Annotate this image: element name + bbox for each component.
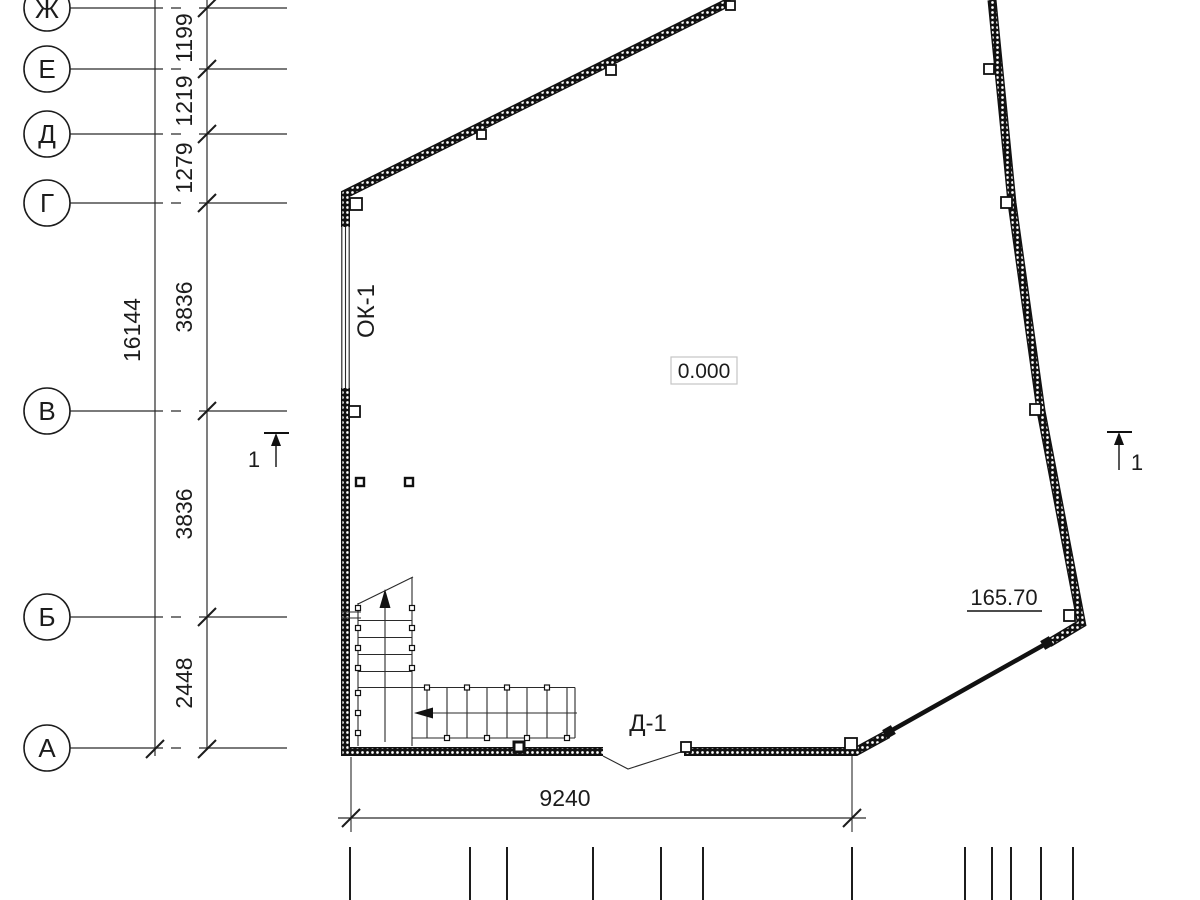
chain-dimension-text: 1199 — [171, 13, 197, 62]
plan-svg: Ж Е Д Г В Б А 16144 1199 1219 1279 3836 … — [0, 0, 1200, 900]
axis-label: Е — [38, 54, 55, 84]
axis-label: Ж — [35, 0, 59, 24]
axis-label: Б — [38, 602, 55, 632]
axis-bubbles: Ж Е Д Г В Б А — [24, 0, 70, 771]
elevation-value: 0.000 — [678, 360, 731, 383]
staircase — [341, 577, 577, 746]
axis-label: А — [38, 733, 56, 763]
bottom-dimension-text: 9240 — [539, 785, 590, 811]
axis-label: В — [38, 396, 55, 426]
stair-post-markers — [356, 606, 570, 741]
window-mark-label: ОК-1 — [353, 284, 380, 338]
overall-dimension-text: 16144 — [119, 298, 145, 362]
axis-label: Д — [38, 119, 56, 149]
dimension-chain-left: 1199 1219 1279 3836 3836 2448 — [171, 0, 216, 758]
door-mark-label: Д-1 — [629, 710, 667, 737]
axis-label: Г — [40, 188, 54, 218]
window-ok1 — [342, 227, 349, 388]
floor-plan-drawing: Ж Е Д Г В Б А 16144 1199 1219 1279 3836 … — [0, 0, 1200, 900]
section-arrow-icon — [271, 433, 281, 446]
section-arrow-icon — [1114, 432, 1124, 445]
chain-dimension-text: 1279 — [171, 142, 197, 193]
site-elevation-mark: 165.70 — [967, 585, 1042, 611]
section-mark-left: 1 — [248, 433, 289, 472]
chain-dimension-text: 2448 — [171, 657, 197, 708]
bottom-extension-lines — [350, 847, 1073, 900]
chain-dimension-text: 3836 — [171, 488, 197, 539]
section-number: 1 — [248, 447, 260, 472]
stair-left-arrow-icon — [414, 708, 577, 719]
chain-dimension-text: 1219 — [171, 75, 197, 126]
door-d1 — [603, 751, 684, 769]
section-mark-right: 1 — [1107, 432, 1143, 475]
site-elevation-value: 165.70 — [970, 585, 1037, 610]
overall-dimension-left: 16144 — [119, 0, 164, 758]
section-number: 1 — [1131, 450, 1143, 475]
elevation-mark: 0.000 — [671, 357, 737, 384]
chain-dimension-text: 3836 — [171, 281, 197, 332]
dimension-bottom: 9240 — [338, 756, 866, 832]
stair-up-arrow-icon — [380, 589, 391, 742]
boundary-wall-line — [882, 636, 1054, 739]
